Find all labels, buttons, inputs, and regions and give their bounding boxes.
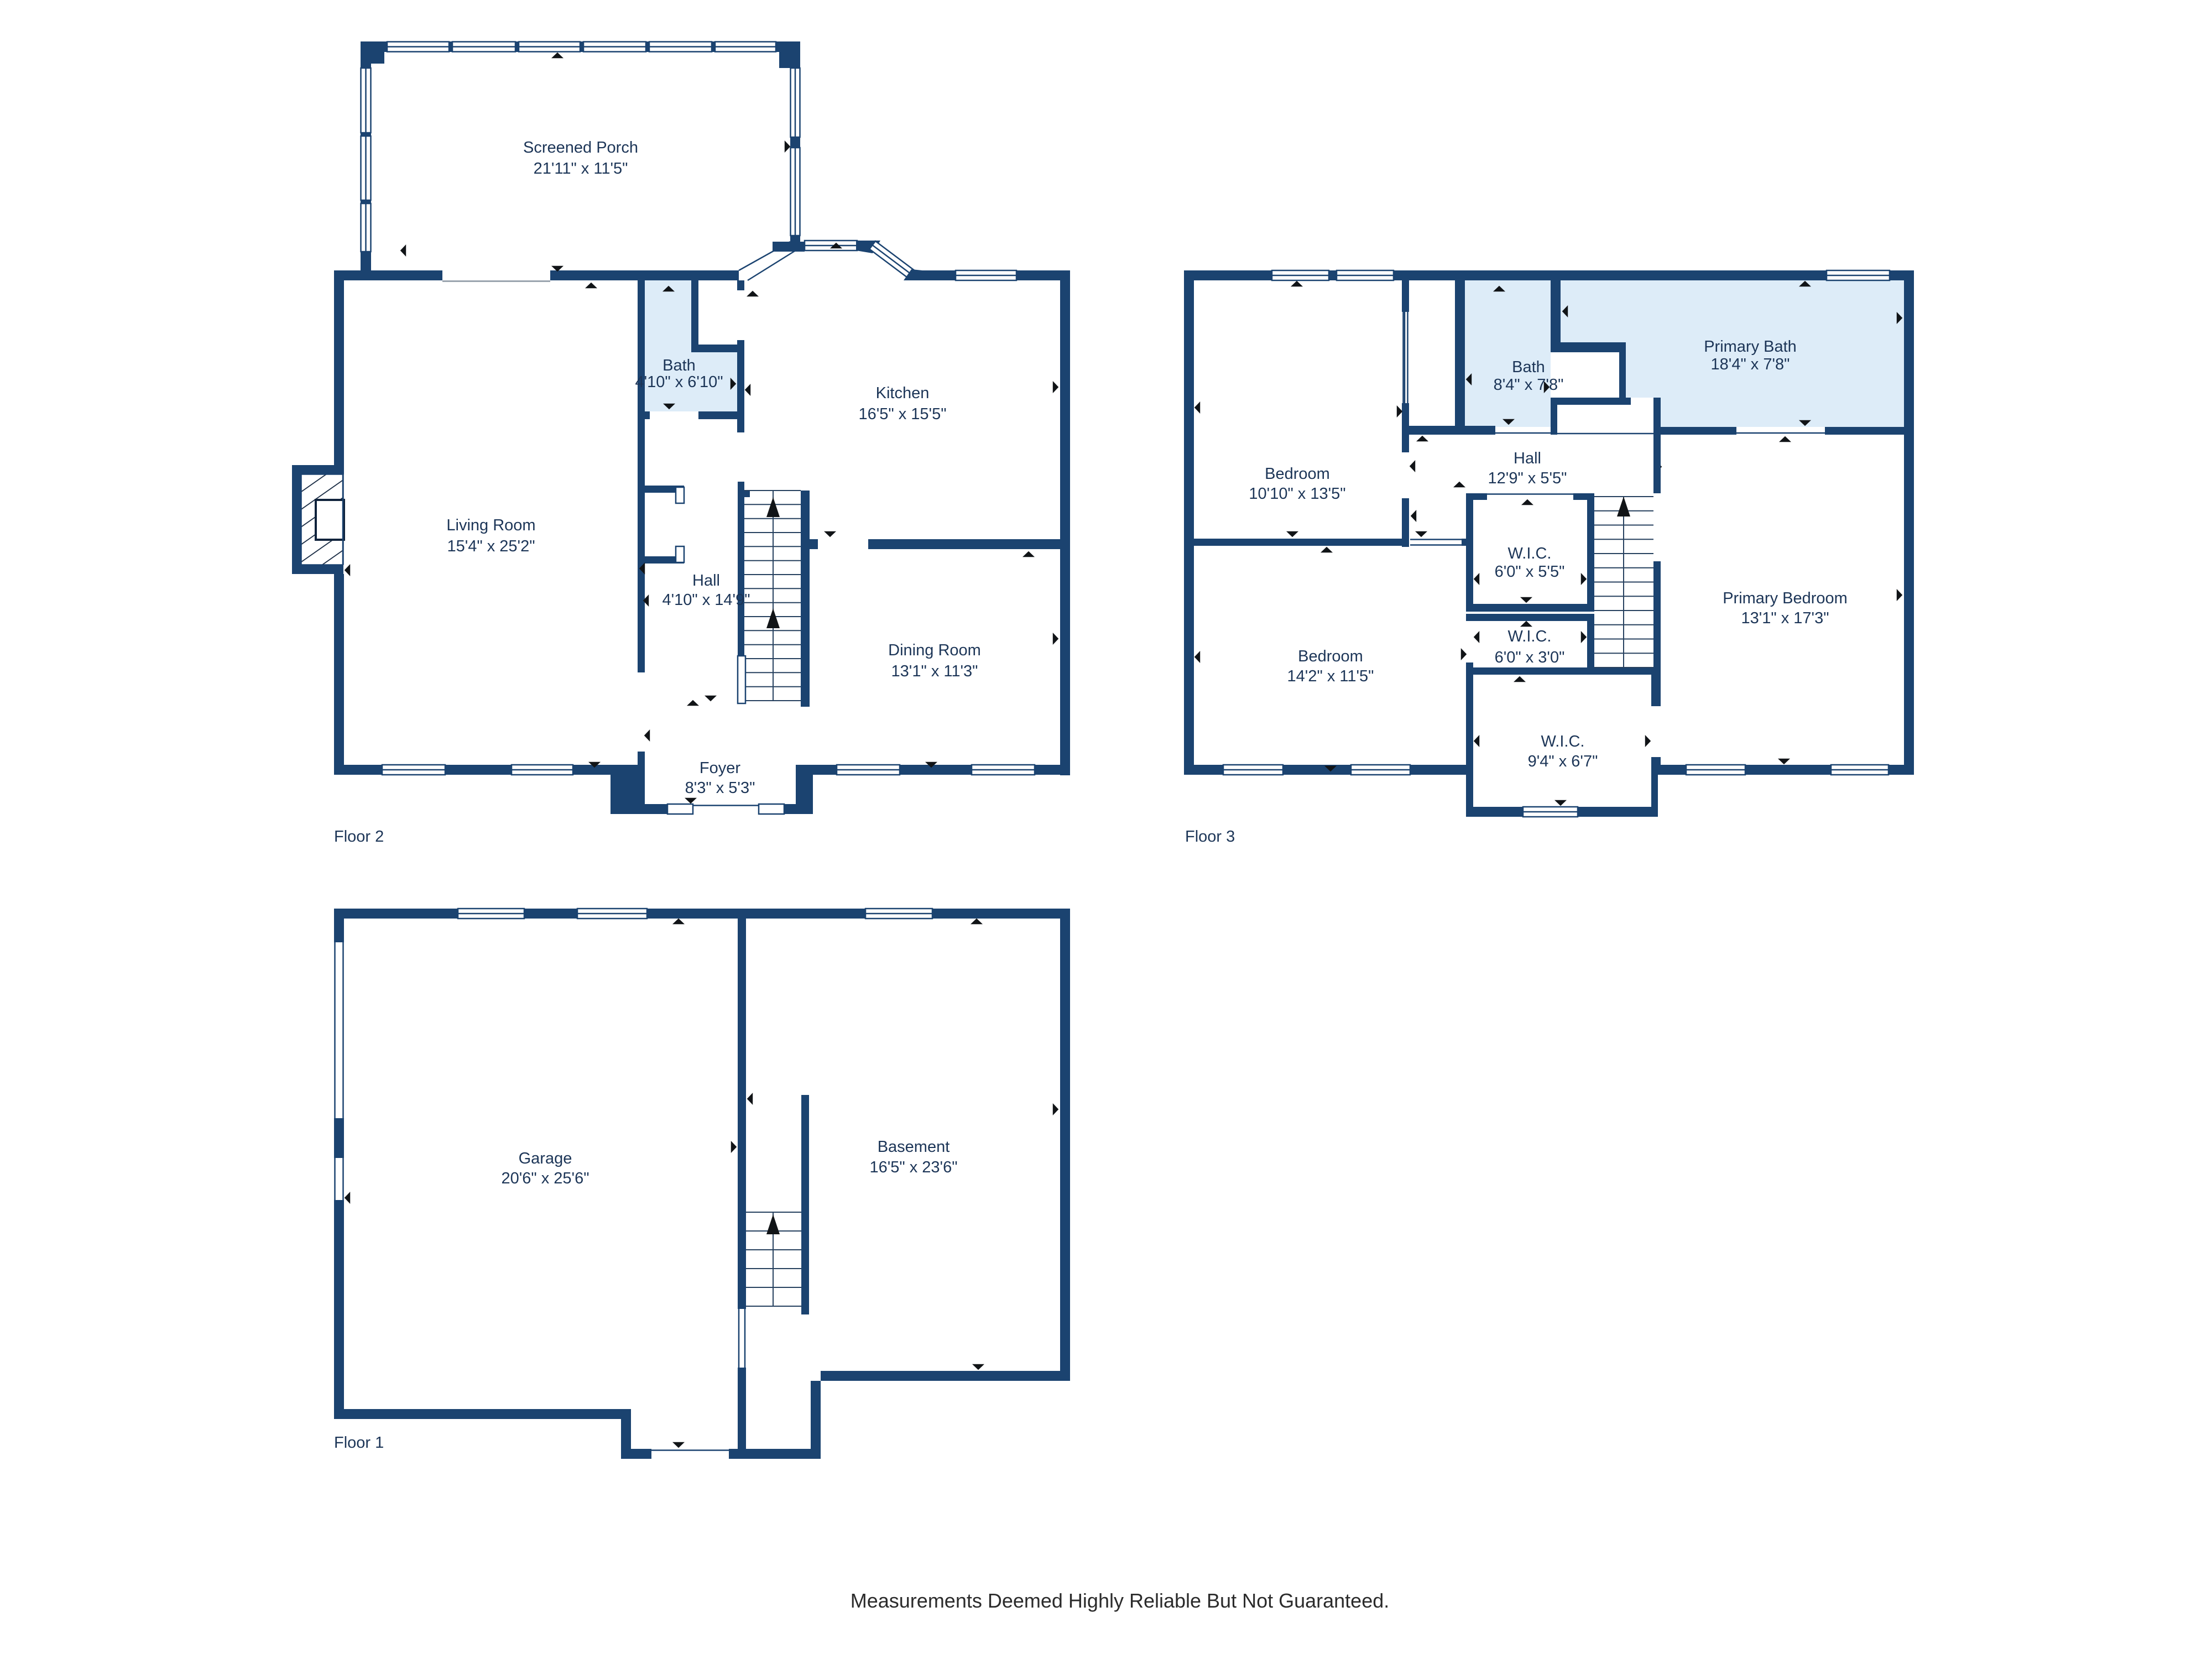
svg-text:Bath: Bath — [1512, 358, 1545, 376]
svg-text:6'0" x 5'5": 6'0" x 5'5" — [1495, 563, 1565, 581]
svg-text:W.I.C.: W.I.C. — [1508, 545, 1552, 562]
svg-text:Screened Porch: Screened Porch — [523, 139, 638, 156]
svg-text:16'5" x 15'5": 16'5" x 15'5" — [858, 405, 946, 423]
svg-text:4'10" x 6'10": 4'10" x 6'10" — [635, 373, 723, 391]
svg-text:Floor 3: Floor 3 — [1185, 828, 1235, 846]
svg-text:14'2" x 11'5": 14'2" x 11'5" — [1287, 667, 1374, 685]
svg-text:Garage: Garage — [519, 1150, 572, 1167]
svg-text:21'11" x 11'5": 21'11" x 11'5" — [534, 160, 628, 178]
svg-text:18'4" x 7'8": 18'4" x 7'8" — [1711, 356, 1790, 373]
svg-text:Bedroom: Bedroom — [1265, 465, 1330, 483]
svg-text:Living Room: Living Room — [446, 517, 535, 534]
svg-text:Bedroom: Bedroom — [1298, 648, 1363, 665]
svg-text:W.I.C.: W.I.C. — [1508, 628, 1552, 645]
svg-text:4'10" x 14'9": 4'10" x 14'9" — [662, 591, 750, 609]
svg-text:12'9" x 5'5": 12'9" x 5'5" — [1488, 469, 1567, 487]
svg-text:16'5" x 23'6": 16'5" x 23'6" — [869, 1159, 957, 1176]
svg-text:Dining Room: Dining Room — [888, 641, 981, 659]
svg-text:15'4" x 25'2": 15'4" x 25'2" — [447, 538, 535, 555]
svg-text:Measurements Deemed Highly Rel: Measurements Deemed Highly Reliable But … — [851, 1589, 1390, 1612]
svg-text:Floor 2: Floor 2 — [334, 828, 384, 846]
svg-text:13'1" x 17'3": 13'1" x 17'3" — [1741, 609, 1829, 627]
svg-text:Basement: Basement — [878, 1138, 950, 1156]
svg-text:20'6" x 25'6": 20'6" x 25'6" — [501, 1170, 589, 1187]
svg-text:8'3" x 5'3": 8'3" x 5'3" — [685, 779, 755, 797]
svg-text:13'1" x 11'3": 13'1" x 11'3" — [891, 662, 978, 680]
svg-text:Hall: Hall — [692, 572, 720, 589]
svg-text:Bath: Bath — [662, 357, 696, 374]
svg-text:Floor 1: Floor 1 — [334, 1434, 384, 1452]
svg-text:Hall: Hall — [1514, 450, 1541, 467]
svg-text:6'0" x 3'0": 6'0" x 3'0" — [1495, 649, 1565, 666]
svg-text:9'4" x 6'7": 9'4" x 6'7" — [1528, 753, 1598, 770]
svg-text:Primary Bedroom: Primary Bedroom — [1723, 589, 1848, 607]
svg-text:Foyer: Foyer — [700, 759, 740, 777]
svg-text:Kitchen: Kitchen — [876, 384, 930, 402]
svg-text:10'10" x 13'5": 10'10" x 13'5" — [1249, 485, 1345, 503]
svg-text:Primary Bath: Primary Bath — [1704, 338, 1797, 356]
svg-text:8'4" x 7'8": 8'4" x 7'8" — [1494, 376, 1564, 394]
svg-text:W.I.C.: W.I.C. — [1541, 733, 1585, 750]
